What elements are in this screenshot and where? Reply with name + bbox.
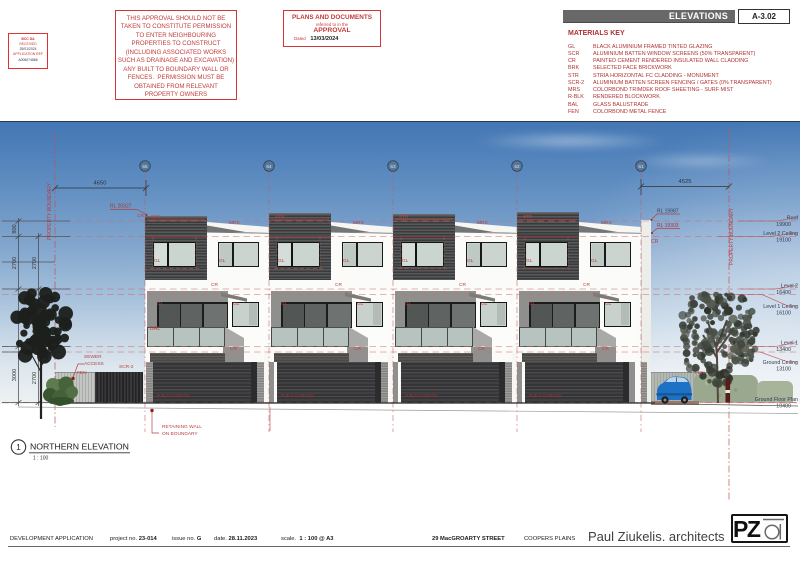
svg-text:62: 62	[514, 164, 520, 169]
svg-text:19100: 19100	[776, 237, 791, 243]
svg-text:800: 800	[12, 224, 18, 233]
svg-text:2700: 2700	[32, 372, 38, 384]
svg-text:13400: 13400	[776, 347, 791, 353]
svg-text:3000: 3000	[12, 369, 18, 381]
svg-text:Level 1: Level 1	[781, 341, 798, 347]
svg-text:Level 2 Ceiling: Level 2 Ceiling	[763, 231, 798, 237]
svg-text:10400: 10400	[776, 403, 791, 409]
svg-text:1: 1	[16, 443, 21, 452]
svg-text:NORTHERN ELEVATION: NORTHERN ELEVATION	[30, 442, 129, 452]
svg-text:4650: 4650	[94, 181, 107, 187]
svg-text:Ground Floor Plan: Ground Floor Plan	[755, 397, 798, 403]
svg-text:Level 1 Ceiling: Level 1 Ceiling	[763, 304, 798, 310]
svg-text:RL 19987: RL 19987	[657, 209, 679, 215]
svg-text:16400: 16400	[776, 290, 791, 296]
svg-text:63: 63	[390, 164, 396, 169]
svg-text:2700: 2700	[12, 257, 18, 269]
svg-text:Ground Ceiling: Ground Ceiling	[763, 360, 798, 366]
svg-text:4525: 4525	[679, 179, 692, 185]
svg-text:19900: 19900	[776, 222, 791, 228]
svg-text:2700: 2700	[32, 257, 38, 269]
svg-text:1 : 100: 1 : 100	[33, 456, 49, 462]
svg-text:65: 65	[142, 164, 148, 169]
svg-text:PROPERTY BOUNDARY: PROPERTY BOUNDARY	[729, 207, 735, 265]
svg-text:16100: 16100	[776, 310, 791, 316]
svg-text:64: 64	[266, 164, 272, 169]
svg-text:RL 20327: RL 20327	[110, 204, 132, 210]
svg-text:13100: 13100	[776, 366, 791, 372]
svg-text:61: 61	[638, 164, 644, 169]
svg-text:RL 19303: RL 19303	[657, 223, 679, 229]
